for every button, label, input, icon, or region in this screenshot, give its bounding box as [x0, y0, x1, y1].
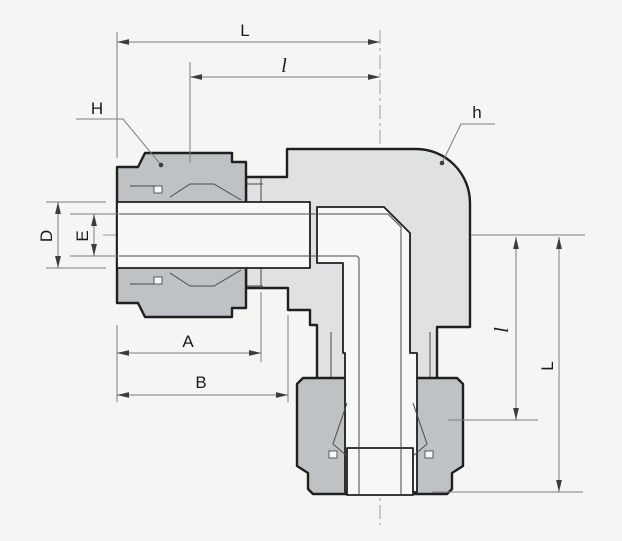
dim-label-B: B	[195, 373, 206, 392]
dim-label-L-top: L	[240, 21, 249, 40]
ferrule-notch	[154, 186, 162, 193]
dim-top-L: L	[117, 21, 380, 158]
leader-dot	[440, 161, 445, 166]
ferrule-notch	[329, 451, 337, 458]
leader-h: h	[440, 103, 495, 165]
technical-drawing-canvas: L l H h D E A B	[0, 0, 622, 541]
ferrule-notch	[154, 277, 162, 284]
dim-label-L-right: L	[538, 361, 557, 370]
leader-line	[442, 124, 495, 163]
tube-horizontal	[117, 202, 310, 268]
dim-label-D: D	[37, 230, 56, 242]
dim-label-l-top: l	[281, 55, 287, 77]
ferrule-notch	[425, 451, 433, 458]
leader-dot	[159, 163, 164, 168]
dim-B: B	[117, 315, 288, 402]
dim-label-E: E	[73, 230, 92, 241]
fitting-cross-section: L l H h D E A B	[0, 0, 622, 541]
dim-label-l-right: l	[491, 327, 513, 333]
dim-label-h: h	[472, 103, 481, 122]
dim-label-A: A	[182, 332, 194, 351]
dim-label-H: H	[91, 99, 103, 118]
dim-D: D	[37, 202, 106, 268]
tube-vertical	[347, 448, 413, 495]
dim-top-l: l	[190, 55, 380, 163]
